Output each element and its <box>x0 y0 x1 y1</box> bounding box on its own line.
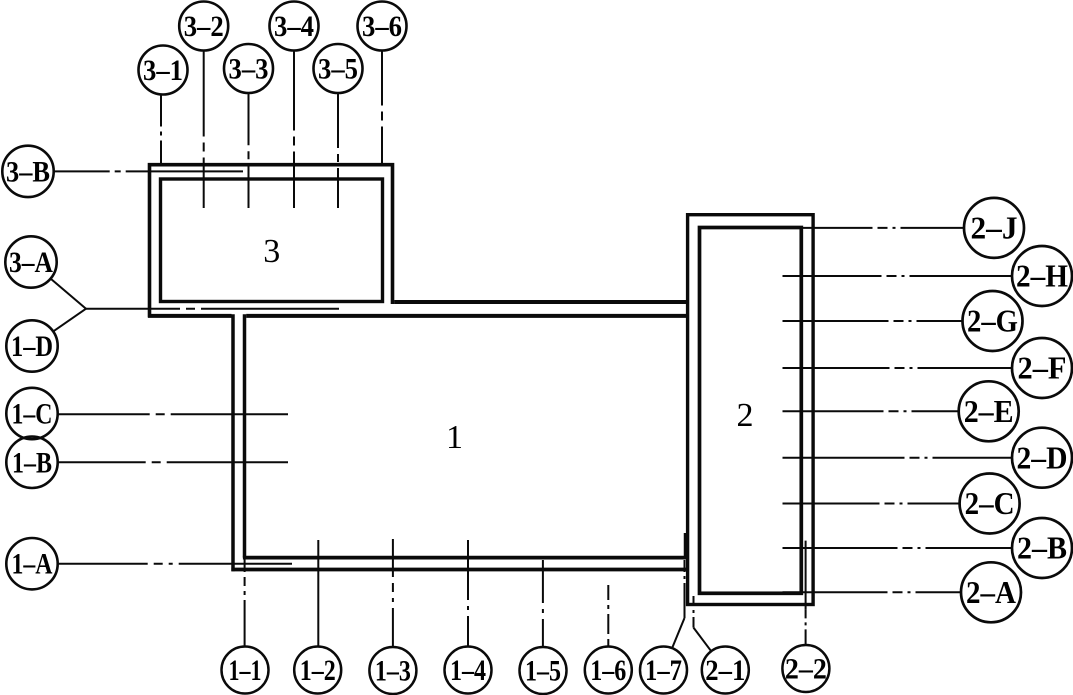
svg-text:3–A: 3–A <box>9 246 53 279</box>
svg-text:1–6: 1–6 <box>590 654 626 687</box>
svg-text:1–4: 1–4 <box>450 654 486 687</box>
svg-text:1–1: 1–1 <box>229 654 262 687</box>
svg-text:1–2: 1–2 <box>300 654 336 687</box>
svg-text:2–2: 2–2 <box>785 653 827 686</box>
svg-text:1: 1 <box>446 419 463 456</box>
svg-text:2–F: 2–F <box>1018 350 1067 386</box>
svg-text:2–1: 2–1 <box>705 654 745 687</box>
svg-text:1–D: 1–D <box>11 330 53 363</box>
svg-text:1–C: 1–C <box>12 398 53 431</box>
svg-text:3–6: 3–6 <box>362 10 402 43</box>
svg-text:2–G: 2–G <box>967 303 1018 339</box>
svg-text:3–B: 3–B <box>6 155 50 188</box>
svg-text:3–1: 3–1 <box>143 54 183 87</box>
svg-text:1–3: 1–3 <box>375 655 411 688</box>
svg-text:1–5: 1–5 <box>525 655 561 688</box>
svg-text:2–J: 2–J <box>971 210 1018 246</box>
svg-text:2–E: 2–E <box>964 393 1014 429</box>
svg-text:1–B: 1–B <box>12 446 52 479</box>
svg-text:2–D: 2–D <box>1017 439 1068 475</box>
svg-text:2–C: 2–C <box>965 485 1015 521</box>
svg-text:1–7: 1–7 <box>645 654 682 687</box>
svg-text:3: 3 <box>263 233 280 270</box>
svg-text:3–2: 3–2 <box>184 10 224 43</box>
svg-text:2–A: 2–A <box>966 574 1016 610</box>
svg-text:2–B: 2–B <box>1017 530 1067 566</box>
svg-text:3–4: 3–4 <box>274 10 314 43</box>
svg-text:1–A: 1–A <box>12 548 53 581</box>
svg-text:2–H: 2–H <box>1016 258 1068 294</box>
svg-text:3–3: 3–3 <box>229 53 269 86</box>
svg-text:3–5: 3–5 <box>318 53 358 86</box>
svg-text:2: 2 <box>737 397 754 434</box>
